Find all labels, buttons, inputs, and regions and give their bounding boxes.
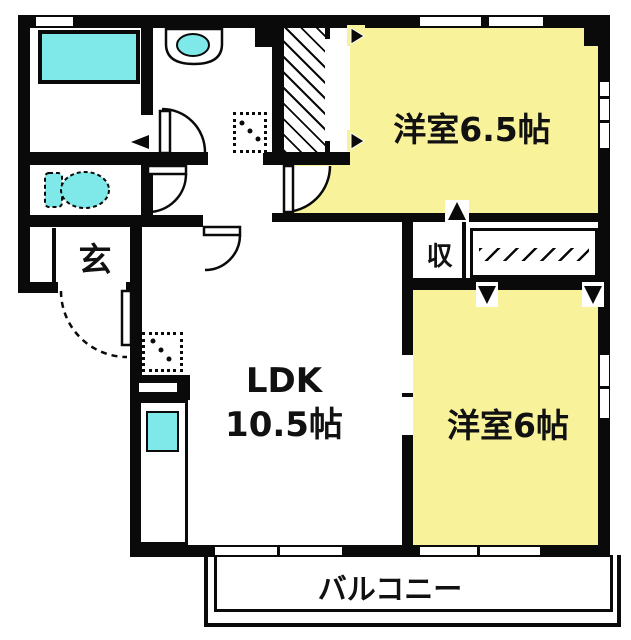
room-6-5-door-leaf xyxy=(284,166,293,212)
entrance-door-arc xyxy=(61,291,127,357)
toilet-bowl xyxy=(61,172,109,208)
washbasin-bowl xyxy=(177,34,209,56)
bathtub xyxy=(40,32,138,82)
dot xyxy=(256,137,261,142)
dot xyxy=(240,121,245,126)
toilet-door-arc xyxy=(148,174,186,212)
label-western-6: 洋室6帖 xyxy=(388,399,628,447)
label-western-6-5: 洋室6.5帖 xyxy=(332,103,612,151)
ldk-door-arc xyxy=(205,235,240,270)
label-ldk-size: 10.5帖 xyxy=(194,403,374,447)
bathroom-door-arrow-icon xyxy=(131,135,149,149)
floor-plan: 洋室6.5帖 洋室6帖 LDK 10.5帖 玄 収 バルコニー xyxy=(0,0,631,640)
dot xyxy=(248,129,253,134)
symbol-overlay xyxy=(0,0,631,640)
label-ldk: LDK 10.5帖 xyxy=(194,359,374,447)
label-storage: 収 xyxy=(413,236,466,273)
label-ldk-name: LDK xyxy=(194,359,374,403)
label-entrance: 玄 xyxy=(75,233,115,281)
entrance-door-leaf xyxy=(122,291,131,345)
dot xyxy=(159,348,164,353)
toilet-door-leaf xyxy=(148,166,186,174)
toilet-tank xyxy=(45,173,62,207)
dot xyxy=(167,357,172,362)
ldk-door-leaf xyxy=(204,227,240,235)
washroom-door-leaf xyxy=(160,111,170,153)
label-balcony: バルコニー xyxy=(270,566,510,608)
dot xyxy=(151,339,156,344)
